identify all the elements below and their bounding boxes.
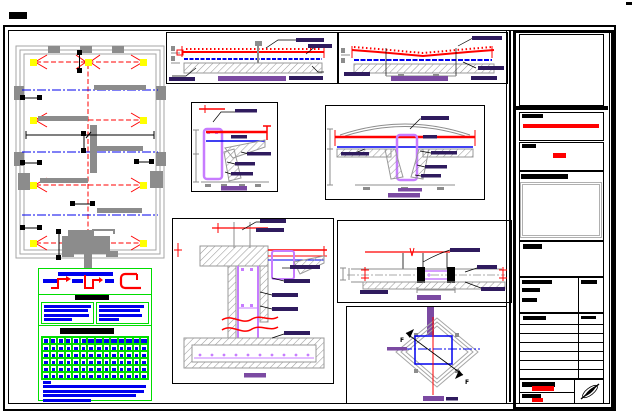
title-block-drawing-area xyxy=(519,34,604,106)
schedule-cell xyxy=(50,372,58,379)
revision-row xyxy=(520,333,603,342)
notes-header-bar xyxy=(75,295,109,300)
schedule-cell xyxy=(95,358,103,365)
signature-red-bar xyxy=(532,386,554,391)
detail-title-bar xyxy=(391,76,448,81)
detail-title-bar xyxy=(417,295,441,300)
note-line-bar xyxy=(44,314,89,317)
schedule-cell xyxy=(140,358,148,365)
schedule-cell xyxy=(72,344,80,351)
schedule-cell xyxy=(50,365,58,372)
schedule-cell xyxy=(80,337,88,344)
plan-beams xyxy=(38,85,146,213)
schedule-cell xyxy=(125,358,133,365)
attribute-label-bar xyxy=(522,298,537,302)
attribute-label-bar xyxy=(522,280,552,284)
north-arrow-icon xyxy=(578,381,602,402)
schedule-cell xyxy=(103,351,111,358)
schedule-cell xyxy=(118,365,126,372)
leader-labels xyxy=(260,265,320,338)
slab-joint-detail xyxy=(337,220,512,303)
subgrade-hatch xyxy=(184,63,322,73)
schedule-cell xyxy=(140,337,148,344)
schedule-cell xyxy=(103,344,111,351)
schedule-cell xyxy=(118,344,126,351)
pile-cap-diamond xyxy=(396,318,478,387)
dimension-lines xyxy=(327,129,333,185)
schedule-cell xyxy=(80,344,88,351)
title-block-divider xyxy=(515,106,608,110)
detail-subtitle-bar xyxy=(289,76,323,80)
drawing-sheet: F F xyxy=(0,0,635,412)
schedule-cell xyxy=(87,351,95,358)
detail-reference-symbol-1 xyxy=(49,273,71,292)
note-line-bar xyxy=(99,318,119,321)
note-line-bar xyxy=(99,305,144,308)
detail-title-bar xyxy=(218,76,286,81)
detail-title-bar xyxy=(423,396,444,401)
detail-reference-symbol-3 xyxy=(117,271,145,292)
schedule-cell xyxy=(80,351,88,358)
grade-beam-cap xyxy=(200,246,268,266)
schedule-cell xyxy=(42,365,50,372)
client-label-bar xyxy=(522,114,543,118)
footnote-line-bar xyxy=(43,385,146,388)
title-block-client-block xyxy=(519,112,604,141)
schedule-cell xyxy=(72,372,80,379)
slab-section xyxy=(347,267,505,283)
title-block-stamp-block xyxy=(519,171,604,241)
detail-title-bar xyxy=(244,373,266,378)
schedule-cell xyxy=(42,372,50,379)
schedule-cell xyxy=(133,365,141,372)
schedule-cell xyxy=(125,344,133,351)
attribute-label-bar xyxy=(581,280,597,284)
schedule-cell xyxy=(65,365,73,372)
title-block-revision-table xyxy=(519,313,604,379)
attribute-label-bar xyxy=(522,288,540,292)
schedule-cell xyxy=(110,358,118,365)
schedule-cell xyxy=(95,372,103,379)
revision-row xyxy=(520,351,603,360)
schedule-cell xyxy=(87,372,95,379)
slab-edge-section-detail xyxy=(166,32,338,84)
schedule-header-bar xyxy=(60,328,114,334)
schedule-cell xyxy=(87,365,95,372)
schedule-cell xyxy=(80,365,88,372)
corner-tick xyxy=(626,2,632,5)
top-rebar xyxy=(177,46,324,58)
project-label-bar xyxy=(522,144,536,148)
right-slab xyxy=(268,246,327,279)
schedule-cell xyxy=(80,372,88,379)
schedule-cell xyxy=(87,358,95,365)
title-block xyxy=(513,30,614,410)
detail-subtitle-bar xyxy=(446,397,458,401)
note-line-bar xyxy=(44,318,72,321)
schedule-cell xyxy=(140,365,148,372)
schedule-cell xyxy=(72,337,80,344)
client-name-bar xyxy=(523,124,599,128)
revision-row xyxy=(520,324,603,333)
title-block-notes-block xyxy=(519,241,604,277)
signature-column-divider xyxy=(574,380,575,403)
legend-label-bar xyxy=(105,279,114,283)
beam-stirrup xyxy=(204,129,222,179)
title-block-project-block xyxy=(519,142,604,171)
left-label-bar xyxy=(387,347,407,351)
schedule-cell xyxy=(87,337,95,344)
schedule-cell xyxy=(65,358,73,365)
schedule-cell xyxy=(110,344,118,351)
schedule-cell xyxy=(133,337,141,344)
schedule-cell xyxy=(50,337,58,344)
schedule-cell xyxy=(103,372,111,379)
schedule-cell xyxy=(95,337,103,344)
schedule-box xyxy=(38,325,152,401)
schedule-cell xyxy=(72,351,80,358)
schedule-cell xyxy=(118,337,126,344)
left-level-mark xyxy=(174,243,182,257)
schedule-cell xyxy=(42,358,50,365)
column-above xyxy=(212,219,286,248)
revision-header-bar xyxy=(523,316,546,320)
section-mark-label: F xyxy=(400,337,404,344)
schedule-cell xyxy=(125,372,133,379)
schedule-cell xyxy=(140,351,148,358)
schedule-cell xyxy=(103,337,111,344)
signature-row-divider xyxy=(520,392,574,393)
schedule-cell xyxy=(118,351,126,358)
schedule-cell xyxy=(57,351,65,358)
schedule-cell xyxy=(57,337,65,344)
schedule-cell xyxy=(57,372,65,379)
schedule-cell xyxy=(65,351,73,358)
schedule-cell xyxy=(42,344,50,351)
schedule-cell xyxy=(118,372,126,379)
plan-equipment-block xyxy=(62,230,114,268)
schedule-cell xyxy=(103,365,111,372)
schedule-cell xyxy=(133,351,141,358)
revision-row xyxy=(520,342,603,351)
signature-red-bar-2 xyxy=(532,398,543,402)
stamp-outer-frame xyxy=(520,182,602,238)
schedule-cell xyxy=(42,337,50,344)
schedule-cell xyxy=(110,372,118,379)
slab-interior-section-detail xyxy=(338,32,508,84)
interior-beam-detail xyxy=(325,105,485,200)
schedule-cell xyxy=(110,337,118,344)
notes-box xyxy=(38,294,152,326)
schedule-cell xyxy=(125,351,133,358)
detail-subtitle-bar xyxy=(398,188,422,192)
schedule-cell xyxy=(140,372,148,379)
note-line-bar xyxy=(44,305,91,308)
camber-curve xyxy=(340,124,470,135)
titleblock-separator-line-2 xyxy=(509,31,511,402)
schedule-cell xyxy=(110,351,118,358)
footnote-line-bar xyxy=(43,394,136,397)
detail-reference-symbol-2 xyxy=(81,272,103,292)
schedule-cell xyxy=(133,344,141,351)
edge-beam-detail xyxy=(191,102,278,192)
footing xyxy=(184,338,324,368)
subgrade-hatch xyxy=(354,64,494,73)
schedule-grid-frame xyxy=(41,336,149,380)
footnote-dash xyxy=(43,381,51,384)
stamp-inner-frame xyxy=(522,184,600,236)
revision-row xyxy=(520,369,603,378)
schedule-cell xyxy=(125,365,133,372)
schedule-cell xyxy=(50,358,58,365)
top-marks xyxy=(199,105,257,122)
schedule-cell xyxy=(133,358,141,365)
schedule-cell xyxy=(133,372,141,379)
project-value-bar xyxy=(553,153,566,158)
plan-section-marks xyxy=(20,50,154,260)
schedule-cell xyxy=(110,365,118,372)
notes-label-bar xyxy=(523,244,542,249)
schedule-footnote xyxy=(41,381,147,399)
schedule-cell xyxy=(57,365,65,372)
top-reference xyxy=(365,248,480,269)
footnote-line-bar xyxy=(43,390,144,393)
revision-row xyxy=(520,360,603,369)
schedule-cell xyxy=(65,337,73,344)
revision-rows xyxy=(520,324,603,378)
schedule-cell xyxy=(42,351,50,358)
schedule-cell xyxy=(95,351,103,358)
top-rebar-sag xyxy=(352,46,494,58)
notes-right-column xyxy=(96,302,149,324)
detail-subtitle-bar xyxy=(471,76,497,80)
legend-box xyxy=(38,268,152,295)
schedule-cell xyxy=(103,358,111,365)
schedule-cell xyxy=(57,344,65,351)
schedule-cell xyxy=(80,358,88,365)
support-symbols xyxy=(341,48,350,63)
schedule-cell xyxy=(65,372,73,379)
title-block-signature-block xyxy=(519,379,604,404)
note-line-bar xyxy=(44,309,88,312)
schedule-cell xyxy=(65,344,73,351)
schedule-cell xyxy=(57,358,65,365)
schedule-cell xyxy=(87,344,95,351)
section-mark-label-2: F xyxy=(465,379,469,386)
schedule-cell xyxy=(50,344,58,351)
detail-title-bar xyxy=(221,186,247,191)
footnote-line-bar xyxy=(43,399,91,402)
foundation-wall-detail xyxy=(172,218,334,384)
schedule-cell xyxy=(72,365,80,372)
attribute-column-divider xyxy=(578,278,579,312)
title-block-attribute-block xyxy=(519,277,604,313)
schedule-cell xyxy=(50,351,58,358)
schedule-cell xyxy=(118,358,126,365)
column-plan-detail: F F xyxy=(346,306,507,404)
note-line-bar xyxy=(99,309,140,312)
schedule-cell xyxy=(72,358,80,365)
foundation-plan-view xyxy=(10,34,170,272)
note-line-bar xyxy=(99,314,142,317)
revision-header-bar xyxy=(581,316,596,319)
schedule-grid xyxy=(42,337,148,379)
schedule-cell xyxy=(95,365,103,372)
schedule-cell xyxy=(140,344,148,351)
fold-mark xyxy=(9,12,27,19)
schedule-cell xyxy=(125,337,133,344)
stamp-label-bar xyxy=(521,174,568,179)
notes-left-column xyxy=(41,302,94,324)
schedule-cell xyxy=(95,344,103,351)
detail-title-bar xyxy=(388,193,420,198)
